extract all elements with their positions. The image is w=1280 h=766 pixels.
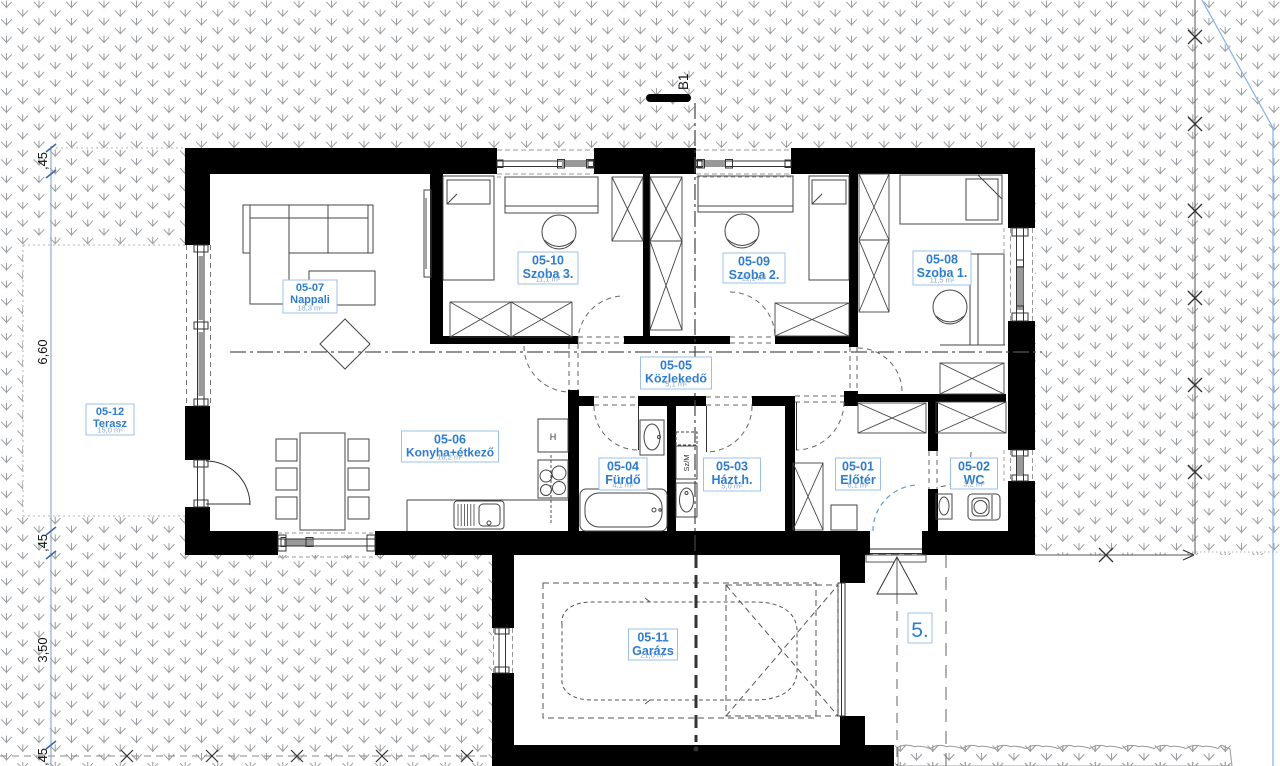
- svg-text:05-02: 05-02: [958, 460, 990, 474]
- svg-text:11,5 m²: 11,5 m²: [930, 276, 955, 285]
- svg-text:05-12: 05-12: [96, 406, 124, 418]
- svg-text:05-03: 05-03: [716, 460, 748, 474]
- svg-text:H: H: [550, 432, 557, 442]
- svg-text:05-10: 05-10: [532, 254, 564, 268]
- svg-text:05-09: 05-09: [738, 255, 770, 269]
- svg-text:05-11: 05-11: [637, 631, 668, 645]
- svg-text:05-08: 05-08: [926, 253, 958, 267]
- svg-text:6,60: 6,60: [35, 339, 50, 364]
- svg-text:18,2 m²: 18,2 m²: [437, 453, 463, 462]
- svg-text:4,1 m²: 4,1 m²: [612, 481, 634, 490]
- svg-text:3,50: 3,50: [35, 637, 50, 662]
- svg-text:,45: ,45: [35, 152, 50, 170]
- svg-text:5.: 5.: [911, 619, 929, 642]
- svg-text:6,1 m²: 6,1 m²: [847, 481, 869, 490]
- svg-text:B1: B1: [676, 73, 691, 90]
- svg-text:18,3 m²: 18,3 m²: [297, 304, 323, 313]
- svg-text:11,1 m²: 11,1 m²: [536, 275, 561, 284]
- svg-text:05-07: 05-07: [296, 282, 324, 294]
- svg-text:21,0 m²: 21,0 m²: [640, 651, 666, 660]
- svg-text:5,0 m²: 5,0 m²: [721, 482, 743, 491]
- svg-text:,45: ,45: [35, 748, 50, 766]
- svg-text:5,1 m²: 5,1 m²: [665, 380, 687, 389]
- svg-text:3,2 m²: 3,2 m²: [963, 480, 985, 489]
- svg-text:11,1 m²: 11,1 m²: [742, 274, 767, 283]
- svg-text:15,0 m²: 15,0 m²: [97, 426, 123, 435]
- svg-text:05-01: 05-01: [842, 460, 874, 474]
- svg-text:05-05: 05-05: [660, 359, 692, 373]
- svg-text:05-06: 05-06: [434, 433, 466, 447]
- svg-text:,45: ,45: [35, 534, 50, 552]
- svg-text:05-04: 05-04: [607, 460, 639, 474]
- svg-text:Sz/M: Sz/M: [682, 454, 691, 471]
